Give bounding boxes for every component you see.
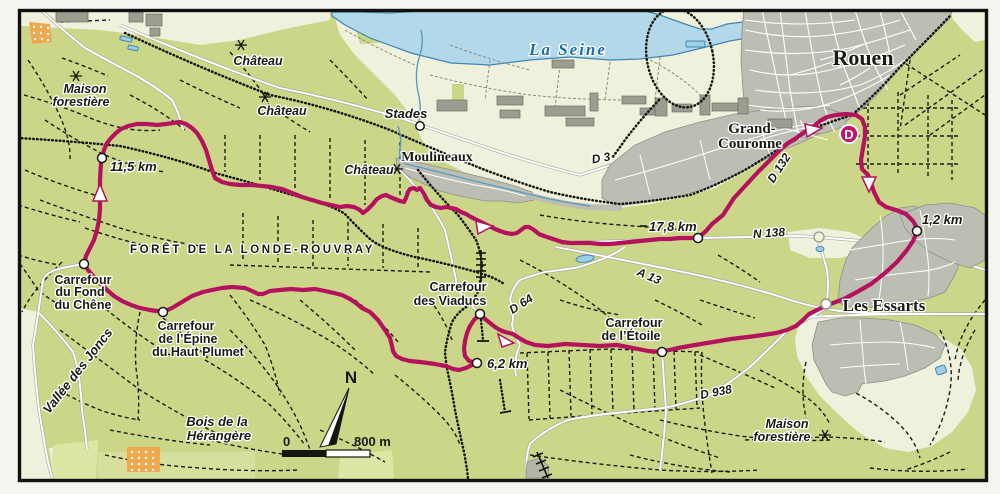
svg-text:D: D	[844, 127, 853, 142]
svg-text:Maison: Maison	[765, 417, 808, 431]
svg-text:du Haut Plumet: du Haut Plumet	[152, 345, 245, 359]
svg-text:Château: Château	[344, 163, 394, 177]
svg-text:Grand-: Grand-	[728, 121, 776, 137]
svg-text:FORÊT DE LA LONDE-ROUVRAY: FORÊT DE LA LONDE-ROUVRAY	[130, 243, 375, 256]
svg-text:Moulineaux: Moulineaux	[401, 150, 473, 165]
svg-text:Couronne: Couronne	[718, 136, 782, 152]
svg-text:forestière: forestière	[754, 430, 811, 444]
svg-text:800 m: 800 m	[354, 434, 391, 449]
svg-text:La Seine: La Seine	[528, 40, 607, 59]
svg-text:Bois de la: Bois de la	[186, 414, 247, 429]
svg-text:forestière: forestière	[53, 95, 110, 109]
svg-text:de l’Épine: de l’Épine	[158, 331, 217, 346]
svg-text:17,8 km: 17,8 km	[649, 219, 697, 234]
svg-text:6,2 km: 6,2 km	[487, 356, 528, 371]
svg-text:Maison: Maison	[63, 82, 106, 96]
svg-text:Château: Château	[233, 54, 283, 68]
svg-text:Carrefour: Carrefour	[606, 316, 663, 330]
svg-text:du Chêne: du Chêne	[55, 298, 112, 312]
svg-text:Hérangère: Hérangère	[187, 428, 251, 443]
svg-text:Château: Château	[257, 104, 307, 118]
svg-text:des Viaducs: des Viaducs	[414, 294, 487, 308]
svg-text:Carrefour: Carrefour	[430, 280, 487, 294]
svg-text:1,2 km: 1,2 km	[922, 212, 963, 227]
svg-text:0: 0	[283, 434, 290, 449]
svg-text:Les Essarts: Les Essarts	[843, 296, 926, 315]
svg-text:Stades: Stades	[385, 106, 428, 121]
svg-text:du Fond: du Fond	[55, 285, 104, 299]
svg-text:N: N	[345, 368, 357, 387]
svg-text:Rouen: Rouen	[832, 45, 893, 70]
svg-text:11,5 km: 11,5 km	[110, 159, 157, 174]
svg-text:de l’Étoile: de l’Étoile	[601, 328, 660, 343]
svg-text:N 138: N 138	[753, 225, 786, 241]
svg-text:Carrefour: Carrefour	[158, 319, 215, 333]
